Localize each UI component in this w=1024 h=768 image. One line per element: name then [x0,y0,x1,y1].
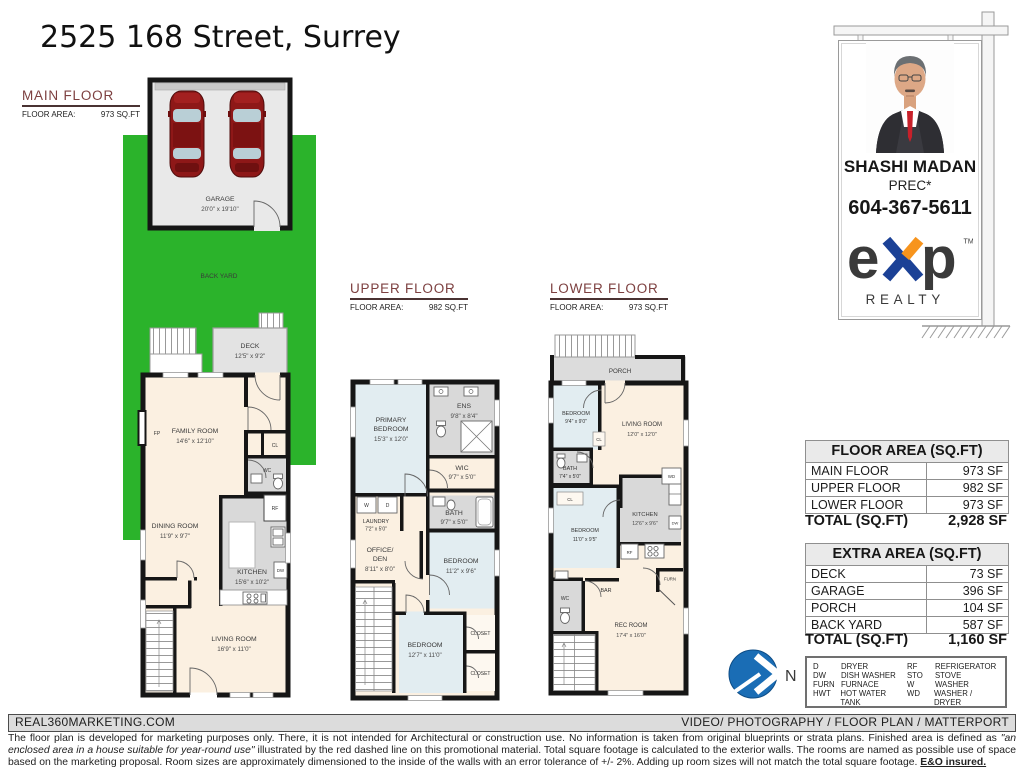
lower-wc [554,581,582,631]
ensuite-dims: 9'8" x 8'4" [450,413,477,420]
kitchen-label: KITCHEN [237,569,267,576]
closet1-label: CLOSET [470,631,490,637]
table-row: DECK 73 SF [806,566,1008,583]
office-label2: DEN [373,556,387,563]
legend-item: HWTHOT WATER TANK [813,689,907,707]
bedroom3-dims: 12'7" x 11'0" [408,652,441,659]
car-icon [228,91,266,177]
bedroom2-label: BEDROOM [443,558,478,565]
fireplace [139,411,146,445]
office-label1: OFFICE/ [367,547,394,554]
agent-photo [866,41,954,153]
logo-x-stroke [886,260,902,278]
bedroom3-label: BEDROOM [407,642,442,649]
disclaimer-text: The floor plan is developed for marketin… [8,733,1016,768]
wc-label: WC [561,596,570,602]
legend-item: RFREFRIGERATOR [907,662,999,671]
living-room-label: LIVING ROOM [211,636,257,643]
extra-area-total: TOTAL (SQ.FT) 1,160 SF [805,632,1007,648]
lower-floor-area-label: FLOOR AREA: [550,303,603,312]
footer-bar: REAL360MARKETING.COM VIDEO/ PHOTOGRAPHY … [8,714,1016,732]
fireplace-label: FP [154,431,161,437]
lower-floor-area-value: 973 SQ.FT [629,303,668,312]
upper-floor-label: UPPER FLOOR [350,281,468,300]
dryer-label: D [386,503,390,509]
furn-label: FURN [664,577,676,582]
porch-room: PORCH [550,355,685,383]
legend-item: WWASHER [907,680,999,689]
table-row: PORCH 104 SF [806,600,1008,617]
table-row: LOWER FLOOR 973 SF [806,497,1008,513]
garage-room: GARAGE 20'0" x 19'10" [150,80,290,231]
floor-area-table-title: FLOOR AREA (SQ.FT) [806,441,1008,463]
bar-label: BAR [600,588,611,594]
lower-closet2-label: CL [567,497,573,502]
closet2-label: CLOSET [470,671,490,677]
rf-label: RF [627,550,633,555]
kitchen-dims: 15'6" x 10'2" [235,579,269,586]
compass: N [726,645,806,705]
kitchen-dims: 12'6" x 9'6" [632,521,658,527]
table-row: BACK YARD 587 SF [806,617,1008,633]
agent-card: SHASHI MADAN PREC* 604-367-5611 e p TM R… [838,40,982,320]
bedroom1-dims: 9'4" x 9'0" [565,419,587,425]
primary-bedroom-label1: PRIMARY [376,417,407,424]
deck-room: DECK 12'5" x 9'2" [213,328,287,375]
upper-floor-area-value: 982 SQ.FT [429,303,468,312]
legend-item: WDWASHER / DRYER [907,689,999,707]
stairs [356,587,393,691]
floor-area-total: TOTAL (SQ.FT) 2,928 SF [805,513,1007,529]
extra-area-table: EXTRA AREA (SQ.FT) DECK 73 SF GARAGE 396… [805,543,1009,634]
kitchen-label: KITCHEN [632,512,657,518]
upper-floor-area-label: FLOOR AREA: [350,303,403,312]
office-dims: 8'11" x 8'0" [365,566,395,573]
bedroom2-dims: 11'0" x 9'5" [573,537,597,543]
closet-label: CL [272,443,279,449]
legend-item: FURNFURNACE [813,680,907,689]
logo-tm: TM [964,237,973,245]
dining-room-dims: 11'9" x 9'7" [160,533,190,540]
extra-area-table-title: EXTRA AREA (SQ.FT) [806,544,1008,566]
exp-realty-logo: e p TM REALTY [847,226,973,308]
living-room-label: LIVING ROOM [622,422,662,428]
deck-dims: 12'5" x 9'2" [235,353,266,360]
porch-label: PORCH [609,368,631,375]
lower-bedroom1 [554,386,599,450]
interior-stairs [146,611,173,691]
kitchen-fixtures [220,522,287,605]
lower-closet1-label: CL [596,437,602,442]
floor-plan-page: 2525 168 Street, Surrey MAIN FLOOR FLOOR… [0,0,1024,768]
bath-dims: 9'7" x 5'0" [440,519,467,526]
bedroom2-dims: 11'2" x 9'6" [446,568,476,575]
table-row: UPPER FLOOR 982 SF [806,480,1008,497]
bath-label: BATH [445,510,463,517]
wc-label: WC [263,468,272,474]
backyard-label: BACK YARD [201,273,238,280]
family-room-dims: 14'6" x 12'10" [176,438,213,445]
living-room-dims: 12'0" x 12'0" [627,432,657,438]
services-label: VIDEO/ PHOTOGRAPHY / FLOOR PLAN / MATTER… [681,715,1009,730]
car-icon [168,91,206,177]
stairs [554,635,596,691]
laundry-label: LAUNDRY [363,519,390,525]
bath-dims: 7'4" x 5'0" [559,474,581,480]
legend-item: DDRYER [813,662,907,671]
logo-x-orange-stroke [905,240,919,257]
upper-floor-heading: UPPER FLOOR FLOOR AREA: 982 SQ.FT [350,281,468,312]
garage-dims: 20'0" x 19'10" [201,206,238,213]
floor-area-table: FLOOR AREA (SQ.FT) MAIN FLOOR 973 SF UPP… [805,440,1009,514]
dw-label: DW [672,521,679,526]
primary-bedroom-dims: 15'3" x 12'0" [374,436,408,443]
porch-stairs [555,335,635,357]
rf-label: RF [272,506,279,512]
legend-item: DWDISH WASHER [813,671,907,680]
bedroom2-label: BEDROOM [571,528,599,534]
main-floor-area-label: FLOOR AREA: [22,110,75,119]
lower-floor-label: LOWER FLOOR [550,281,668,300]
bedroom1-label: BEDROOM [562,411,590,417]
living-room-dims: 16'9" x 11'0" [217,646,250,653]
deck-label: DECK [241,343,260,350]
legend-item: STOSTOVE [907,671,999,680]
primary-bedroom-label2: BEDROOM [373,426,408,433]
ensuite-label: ENS [457,403,471,410]
logo-p: p [921,226,957,291]
ground-hatch [922,326,1010,338]
table-row: MAIN FLOOR 973 SF [806,463,1008,480]
agent-designation: PREC* [889,178,932,193]
wic-dims: 9'7" x 5'0" [448,474,475,481]
lower-floor-plan: PORCH CL [548,328,693,710]
agent-name: SHASHI MADAN [844,157,976,177]
rec-room-dims: 17'4" x 16'0" [616,633,646,639]
upper-floor-plan: W D [348,375,503,705]
rec-room-label: REC ROOM [615,623,648,629]
logo-realty: REALTY [866,292,945,307]
family-room-label: FAMILY ROOM [172,428,219,435]
lower-floor-heading: LOWER FLOOR FLOOR AREA: 973 SQ.FT [550,281,668,312]
table-row: GARAGE 396 SF [806,583,1008,600]
page-title: 2525 168 Street, Surrey [40,20,401,55]
garage-label: GARAGE [205,196,235,203]
main-floor-plan: BACK YARD [118,75,328,705]
laundry-dims: 7'2" x 5'0" [365,527,387,533]
washer-label: W [364,503,369,509]
agent-phone: 604-367-5611 [848,197,971,220]
compass-north-label: N [785,668,797,685]
marketing-site-label: REAL360MARKETING.COM [15,715,175,730]
wic-label: WIC [455,465,468,472]
logo-e: e [847,226,879,291]
dw-label: DW [277,568,285,573]
wd-label: WD [668,474,675,479]
bath-label: BATH [563,466,577,472]
abbreviation-legend: DDRYER DWDISH WASHER FURNFURNACE HWTHOT … [805,656,1007,708]
dining-room-label: DINING ROOM [152,523,199,530]
